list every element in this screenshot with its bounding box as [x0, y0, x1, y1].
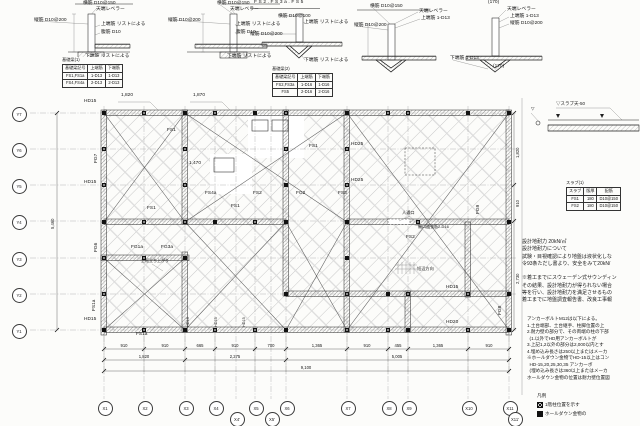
text-label: 下端筋 リストによる	[304, 59, 348, 64]
legend-item: ホールダウン金物の	[537, 411, 586, 417]
beam-label: FS1	[167, 129, 176, 134]
dimension: 910	[121, 344, 128, 348]
hd-label: HD15	[84, 181, 96, 186]
note-line: その結果、設計地耐力が得られない場合	[522, 283, 617, 290]
table-cell: FS1	[567, 195, 584, 203]
grid-bubble-Y6: Y6	[12, 143, 27, 158]
grid-bubble-X7: X7	[341, 401, 356, 416]
column-marker	[213, 111, 217, 115]
holddown-marker	[406, 328, 410, 332]
column-symbol-icon	[537, 402, 543, 408]
slab-table: スラブ版厚配筋FS1180D10@150FS2180D10@150	[566, 187, 621, 211]
grid-bubble-X10: X10	[462, 401, 477, 416]
dimension: 910	[516, 200, 520, 207]
holddown-marker	[507, 111, 511, 115]
table-cell: 180	[584, 203, 597, 211]
note-line: 令93条ただし書より、安全をみて20kN/	[522, 261, 617, 268]
dimension: 1,820	[139, 355, 149, 359]
slab-schedule: スラブ(1) スラブ版厚配筋FS1180D10@150FS2180D10@150	[566, 180, 621, 211]
note-line: アンカーボルトM12は以下による。	[527, 316, 610, 323]
dimension: 700	[268, 344, 275, 348]
table-cell: 180	[584, 195, 597, 203]
table-row: FS52-D162-D16	[273, 89, 333, 97]
column-header: 版厚	[584, 188, 597, 196]
holddown-marker	[466, 111, 470, 115]
holddown-marker	[345, 220, 349, 224]
note-line: 2.耐力壁の部分で、その両端の柱の下部	[527, 329, 610, 336]
hd-label: HD15	[215, 317, 219, 327]
column-marker	[386, 111, 390, 115]
beam-table-2: 基礎梁記号上端筋下端筋FS2,FS3a1-D161-D16FS52-D162-D…	[272, 73, 333, 97]
grid-bubble-X1: X1	[98, 401, 113, 416]
column-header: 基礎梁記号	[63, 65, 88, 73]
column-marker	[102, 292, 106, 296]
text-label: 天端レベラー	[507, 8, 536, 13]
grid-bubble-Y5: Y5	[12, 179, 27, 194]
column-header: 配筋	[597, 188, 621, 196]
dimension: 1,870	[193, 94, 205, 99]
holddown-marker	[507, 220, 511, 224]
holddown-marker	[183, 256, 187, 260]
table-cell: FS2,FS3a	[273, 81, 298, 89]
grid-bubble-X3: X3	[179, 401, 194, 416]
beam-label: FS1a	[93, 300, 98, 311]
column-marker	[253, 220, 257, 224]
note-line: ※ホールダウン金物でHD-15以上はコン	[527, 355, 610, 362]
table-header-row: 基礎梁記号上端筋下端筋	[63, 65, 123, 73]
table-cell: FS5	[273, 89, 298, 97]
beam-label: FS3	[338, 192, 347, 197]
column-marker	[102, 147, 106, 151]
table-cell: FS4,FS4a	[63, 80, 88, 88]
beam-label: FG8	[499, 306, 504, 315]
beam-schedule-2: 基礎梁(2) 基礎梁記号上端筋下端筋FS2,FS3a1-D161-D16FS52…	[272, 66, 333, 97]
dimension: 1,820	[121, 94, 133, 99]
holddown-marker	[183, 328, 187, 332]
table-row: FS4,FS4a2-D132-D13	[63, 80, 123, 88]
column-marker	[183, 147, 187, 151]
holddown-marker	[345, 256, 349, 260]
beam-label: FS2	[253, 192, 262, 197]
holddown-marker	[284, 220, 288, 224]
dimension: 455	[395, 344, 402, 348]
holddown-marker	[507, 292, 511, 296]
holddown-marker	[102, 220, 106, 224]
table-cell: 1-D16	[298, 81, 315, 89]
grid-bubble-Y1: Y1	[12, 324, 27, 339]
dimension: 2,275	[230, 355, 240, 359]
text-label: 縦筋 D10@200	[34, 19, 67, 24]
note-line: 3.上記1,2以外の部分は2,000以内とす	[527, 342, 610, 349]
table-row: FS2,FS3a1-D161-D16	[273, 81, 333, 89]
note-line: ※着工までにスウェーデン式サウンディン	[522, 275, 617, 282]
dimension: 910	[232, 344, 239, 348]
text-label: 人通口	[402, 211, 415, 215]
column-marker	[466, 292, 470, 296]
table-cell: 2-D16	[315, 89, 332, 97]
text-label: 横筋 D10@150	[370, 5, 403, 10]
dimension: 2,730	[516, 274, 520, 284]
beam-label: FS1	[147, 207, 156, 212]
beam-label: FS2.FS3a.FS5	[254, 1, 305, 6]
text-label: 下端筋 1-D13	[450, 57, 479, 62]
anchor-bolt-notes: アンカーボルトM12は以下による。1.土台端部、土台継手、柱脚位置の上2.耐力壁…	[527, 316, 610, 381]
column-marker	[284, 111, 288, 115]
grid-bubble-Y4: Y4	[12, 215, 27, 230]
grid-bubble-X11': X11'	[508, 412, 523, 426]
table-cell: FS2	[567, 203, 584, 211]
dimension: 910	[162, 344, 169, 348]
text-label: 短辺方向	[417, 267, 434, 271]
note-line: 着工までに地盤調査報告書、改良工事報	[522, 297, 617, 304]
column-marker	[102, 256, 106, 260]
dimension: 1,365	[433, 344, 443, 348]
note-line: 設計地耐力について	[522, 246, 617, 253]
grid-bubble-X9: X9	[402, 401, 417, 416]
grid-bubble-X5': X5'	[265, 412, 280, 426]
holddown-marker	[253, 111, 257, 115]
holddown-marker	[284, 328, 288, 332]
hd-label: HD15	[446, 286, 458, 291]
text-label: ▽	[531, 107, 534, 112]
column-marker	[345, 292, 349, 296]
dimension: 9,100	[301, 366, 311, 370]
beam-label: FS1	[309, 145, 318, 150]
holddown-marker	[386, 292, 390, 296]
beam-label: FG7	[95, 154, 100, 163]
table-header-row: スラブ版厚配筋	[567, 188, 621, 196]
column-marker	[142, 220, 146, 224]
holddown-marker	[213, 220, 217, 224]
holddown-marker	[183, 111, 187, 115]
beam-schedule-1: 基礎梁(1) 基礎梁記号上端筋下端筋FS1,FS1a1-D131-D13FS4,…	[62, 57, 123, 88]
column-marker	[142, 328, 146, 332]
column-marker	[284, 147, 288, 151]
legend-label: 1階柱位置を示す	[545, 402, 580, 408]
beam-label: FS2	[406, 236, 415, 241]
hd-label: HD15	[187, 317, 191, 327]
table-title: スラブ(1)	[566, 180, 621, 186]
grid-bubble-Y7: Y7	[12, 107, 27, 122]
grid-bubble-X4': X4'	[230, 412, 245, 426]
grid-bubble-Y2: Y2	[12, 288, 27, 303]
soil-bearing-notes: 設計地耐力 20kN/㎡設計地耐力について試験・目視確認により地盤は液状化しな令…	[522, 239, 617, 304]
beam-label: FG3a	[161, 246, 173, 251]
dimension: (170)	[493, 65, 504, 70]
column-marker	[345, 147, 349, 151]
beam-label: FG6	[95, 243, 100, 252]
column-header: 上端筋	[88, 65, 105, 73]
holddown-marker	[284, 183, 288, 187]
grid-bubble-X8: X8	[382, 401, 397, 416]
table-title: 基礎梁(1)	[62, 57, 123, 63]
grid-bubble-X2: X2	[138, 401, 153, 416]
table-title: 基礎梁(2)	[272, 66, 333, 72]
legend-label: ホールダウン金物の	[545, 411, 586, 417]
column-marker	[183, 183, 187, 187]
table-header-row: 基礎梁記号上端筋下端筋	[273, 74, 333, 82]
text-label: 縦筋 D10@200	[168, 19, 201, 24]
holddown-marker	[507, 328, 511, 332]
column-marker	[406, 292, 410, 296]
hd-label: HD25	[351, 179, 363, 184]
column-header: 上端筋	[298, 74, 315, 82]
hd-label: HD15	[84, 318, 96, 323]
table-cell: 2-D13	[88, 80, 105, 88]
table-cell: 2-D13	[105, 80, 122, 88]
text-label: ▽スラブ天-50	[556, 102, 585, 107]
column-marker	[253, 328, 257, 332]
dimension: 665	[197, 344, 204, 348]
hd-label: HD20	[446, 321, 458, 326]
table-cell: FS1,FS1a	[63, 72, 88, 80]
beam-label: FG2	[296, 192, 305, 197]
column-header: スラブ	[567, 188, 584, 196]
text-label: 下端筋 リストによる	[227, 55, 271, 60]
column-marker	[142, 256, 146, 260]
beam-label: FS1	[231, 205, 240, 210]
text-label: 開口補強筋2-D16	[418, 225, 449, 229]
holddown-marker	[102, 111, 106, 115]
dimension: 910	[486, 344, 493, 348]
dimension: 1,470	[189, 162, 201, 167]
beam-label: FS4a	[205, 192, 216, 197]
text-label: 上端筋 1-D13	[510, 15, 539, 20]
column-marker	[416, 220, 420, 224]
dimension: 1,820	[516, 148, 520, 158]
drawing-sheet: 横筋 D10@150天端レベラー縦筋 D10@200上端筋 リストによる腹筋 D…	[0, 0, 640, 426]
text-label: 天端レベラー	[419, 10, 448, 15]
table-cell: D10@150	[597, 203, 621, 211]
column-marker	[466, 328, 470, 332]
text-label: 天端レベラー	[230, 8, 259, 13]
note-line: (埋め込み長さは360以上またはメーカ	[527, 368, 610, 375]
text-label: 天端レベラー	[96, 8, 125, 13]
column-marker	[345, 183, 349, 187]
grid-bubble-X5: X5	[249, 401, 264, 416]
note-line: 試験・目視確認により地盤は液状化しな	[522, 254, 617, 261]
column-marker	[213, 328, 217, 332]
holddown-marker	[102, 328, 106, 332]
beam-label: FG1a	[131, 246, 143, 251]
table-cell: 1-D13	[105, 72, 122, 80]
table-cell: 1-D13	[88, 72, 105, 80]
hd-label: HD25	[351, 143, 363, 148]
column-marker	[102, 183, 106, 187]
grid-bubble-X6: X6	[280, 401, 295, 416]
column-marker	[345, 328, 349, 332]
text-label: 上端筋 リストによる	[304, 21, 348, 26]
column-header: 下端筋	[105, 65, 122, 73]
table-row: FS1,FS1a1-D131-D13	[63, 72, 123, 80]
table-cell: D10@150	[597, 195, 621, 203]
column-header: 基礎梁記号	[273, 74, 298, 82]
column-marker	[406, 111, 410, 115]
beam-label: FG9	[477, 205, 482, 214]
dimension: 5,460	[51, 219, 55, 229]
text-label: 上端筋 1-D13	[421, 17, 450, 22]
column-marker	[183, 220, 187, 224]
dimension: 910	[364, 344, 371, 348]
grid-bubble-Y3: Y3	[12, 252, 27, 267]
dimension: 5,005	[392, 355, 402, 359]
table-row: FS1180D10@150	[567, 195, 621, 203]
text-label: 縦筋 D10@200	[250, 33, 283, 38]
column-marker	[142, 111, 146, 115]
dimension: (170)	[488, 1, 499, 6]
column-header: 下端筋	[315, 74, 332, 82]
grid-bubble-X4: X4	[209, 401, 224, 416]
holddown-marker	[284, 292, 288, 296]
legend-title: 凡例	[537, 393, 586, 399]
holddown-symbol-icon	[537, 411, 543, 417]
beam-label: FS1a	[136, 333, 147, 338]
column-marker	[386, 328, 390, 332]
hd-label: HD15	[84, 100, 96, 105]
holddown-marker	[345, 111, 349, 115]
text-label: 縦筋 D10@200	[354, 24, 387, 29]
note-line: 等を行い、設計地耐力を満足させるもの	[522, 290, 617, 297]
table-cell: 1-D16	[315, 81, 332, 89]
beam-table-1: 基礎梁記号上端筋下端筋FS1,FS1a1-D131-D13FS4,FS4a2-D…	[62, 64, 123, 88]
text-label: 腹筋 D10	[101, 31, 121, 36]
dimension: 1,365	[312, 344, 322, 348]
legend-item: 1階柱位置を示す	[537, 402, 586, 408]
table-cell: 2-D16	[298, 89, 315, 97]
text-label: 縦筋 D10@200	[510, 22, 543, 27]
note-line: ホールダウン金物の位置は耐力壁位置図	[527, 375, 610, 382]
text-label: 上端筋 リストによる	[101, 23, 145, 28]
text-label: 上端筋 リストによる	[236, 23, 280, 28]
hd-label: HD15	[243, 317, 247, 327]
table-row: FS2180D10@150	[567, 203, 621, 211]
legend: 凡例 1階柱位置を示すホールダウン金物の	[537, 393, 586, 417]
